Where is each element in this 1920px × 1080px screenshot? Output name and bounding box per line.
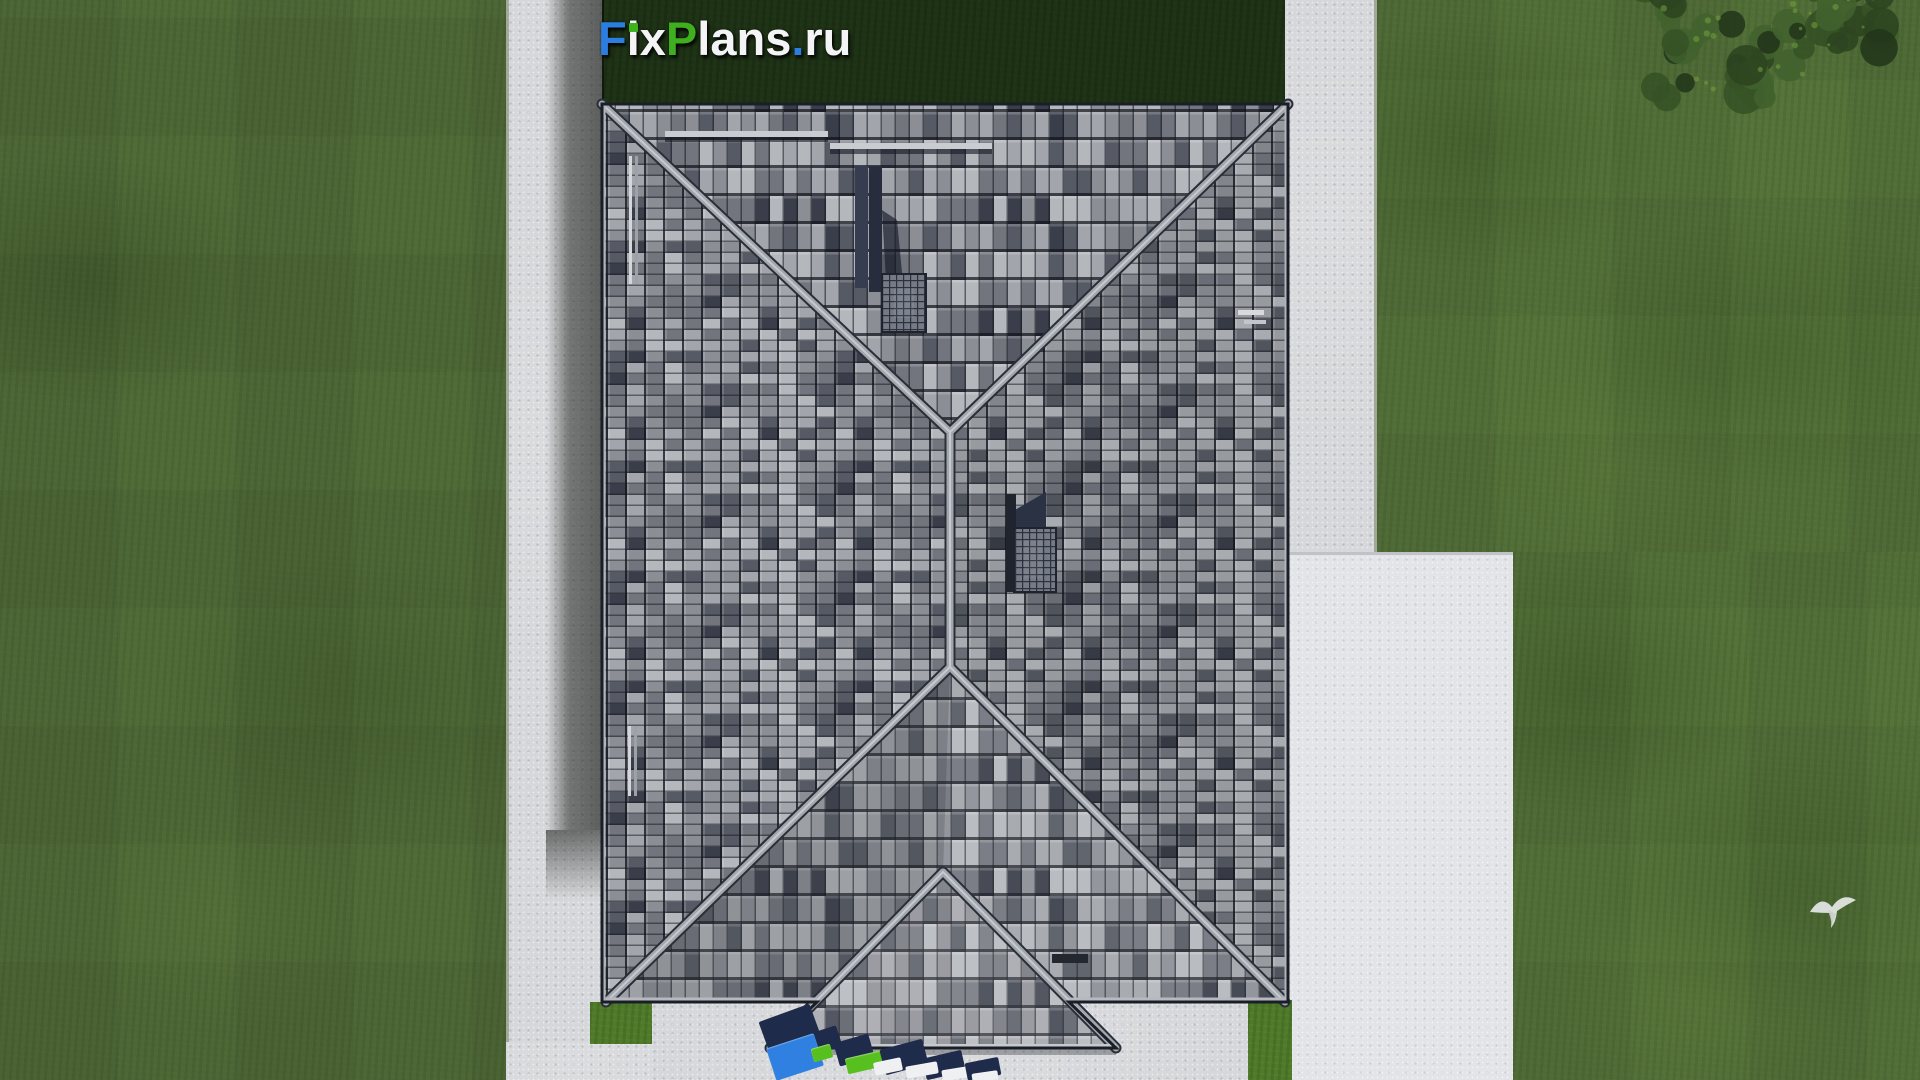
roof-pipe (628, 726, 631, 796)
roof-aerial (0, 0, 1920, 1080)
roof-mark (1244, 320, 1266, 324)
logo-segment: ru (804, 14, 851, 64)
logo-segment: P (666, 14, 697, 64)
logo-segment: F (598, 14, 627, 64)
roof-pipe (629, 156, 632, 284)
logo-segment: x (640, 14, 666, 64)
tree-foliage (1600, 0, 1920, 150)
logo-segment: . (791, 14, 804, 64)
roof-pipe (635, 156, 638, 284)
watermark-3d-logo (735, 1002, 1055, 1080)
snow-rail-left-shadow (665, 137, 828, 142)
logo-segment: lans (697, 14, 791, 64)
porch-vent (1052, 954, 1088, 963)
bird-icon (1806, 888, 1860, 932)
logo-i-dot (629, 23, 638, 32)
roof-mark (1238, 310, 1264, 315)
logo-segment: i (627, 14, 640, 64)
snow-rail-left (665, 131, 828, 137)
aerial-render-scene: FixPlans.ru (0, 0, 1920, 1080)
roof-pipe (634, 726, 637, 796)
snow-rail-right (830, 143, 992, 149)
snow-rail-right-shadow (830, 149, 992, 154)
site-logo: FixPlans.ru (598, 14, 851, 66)
